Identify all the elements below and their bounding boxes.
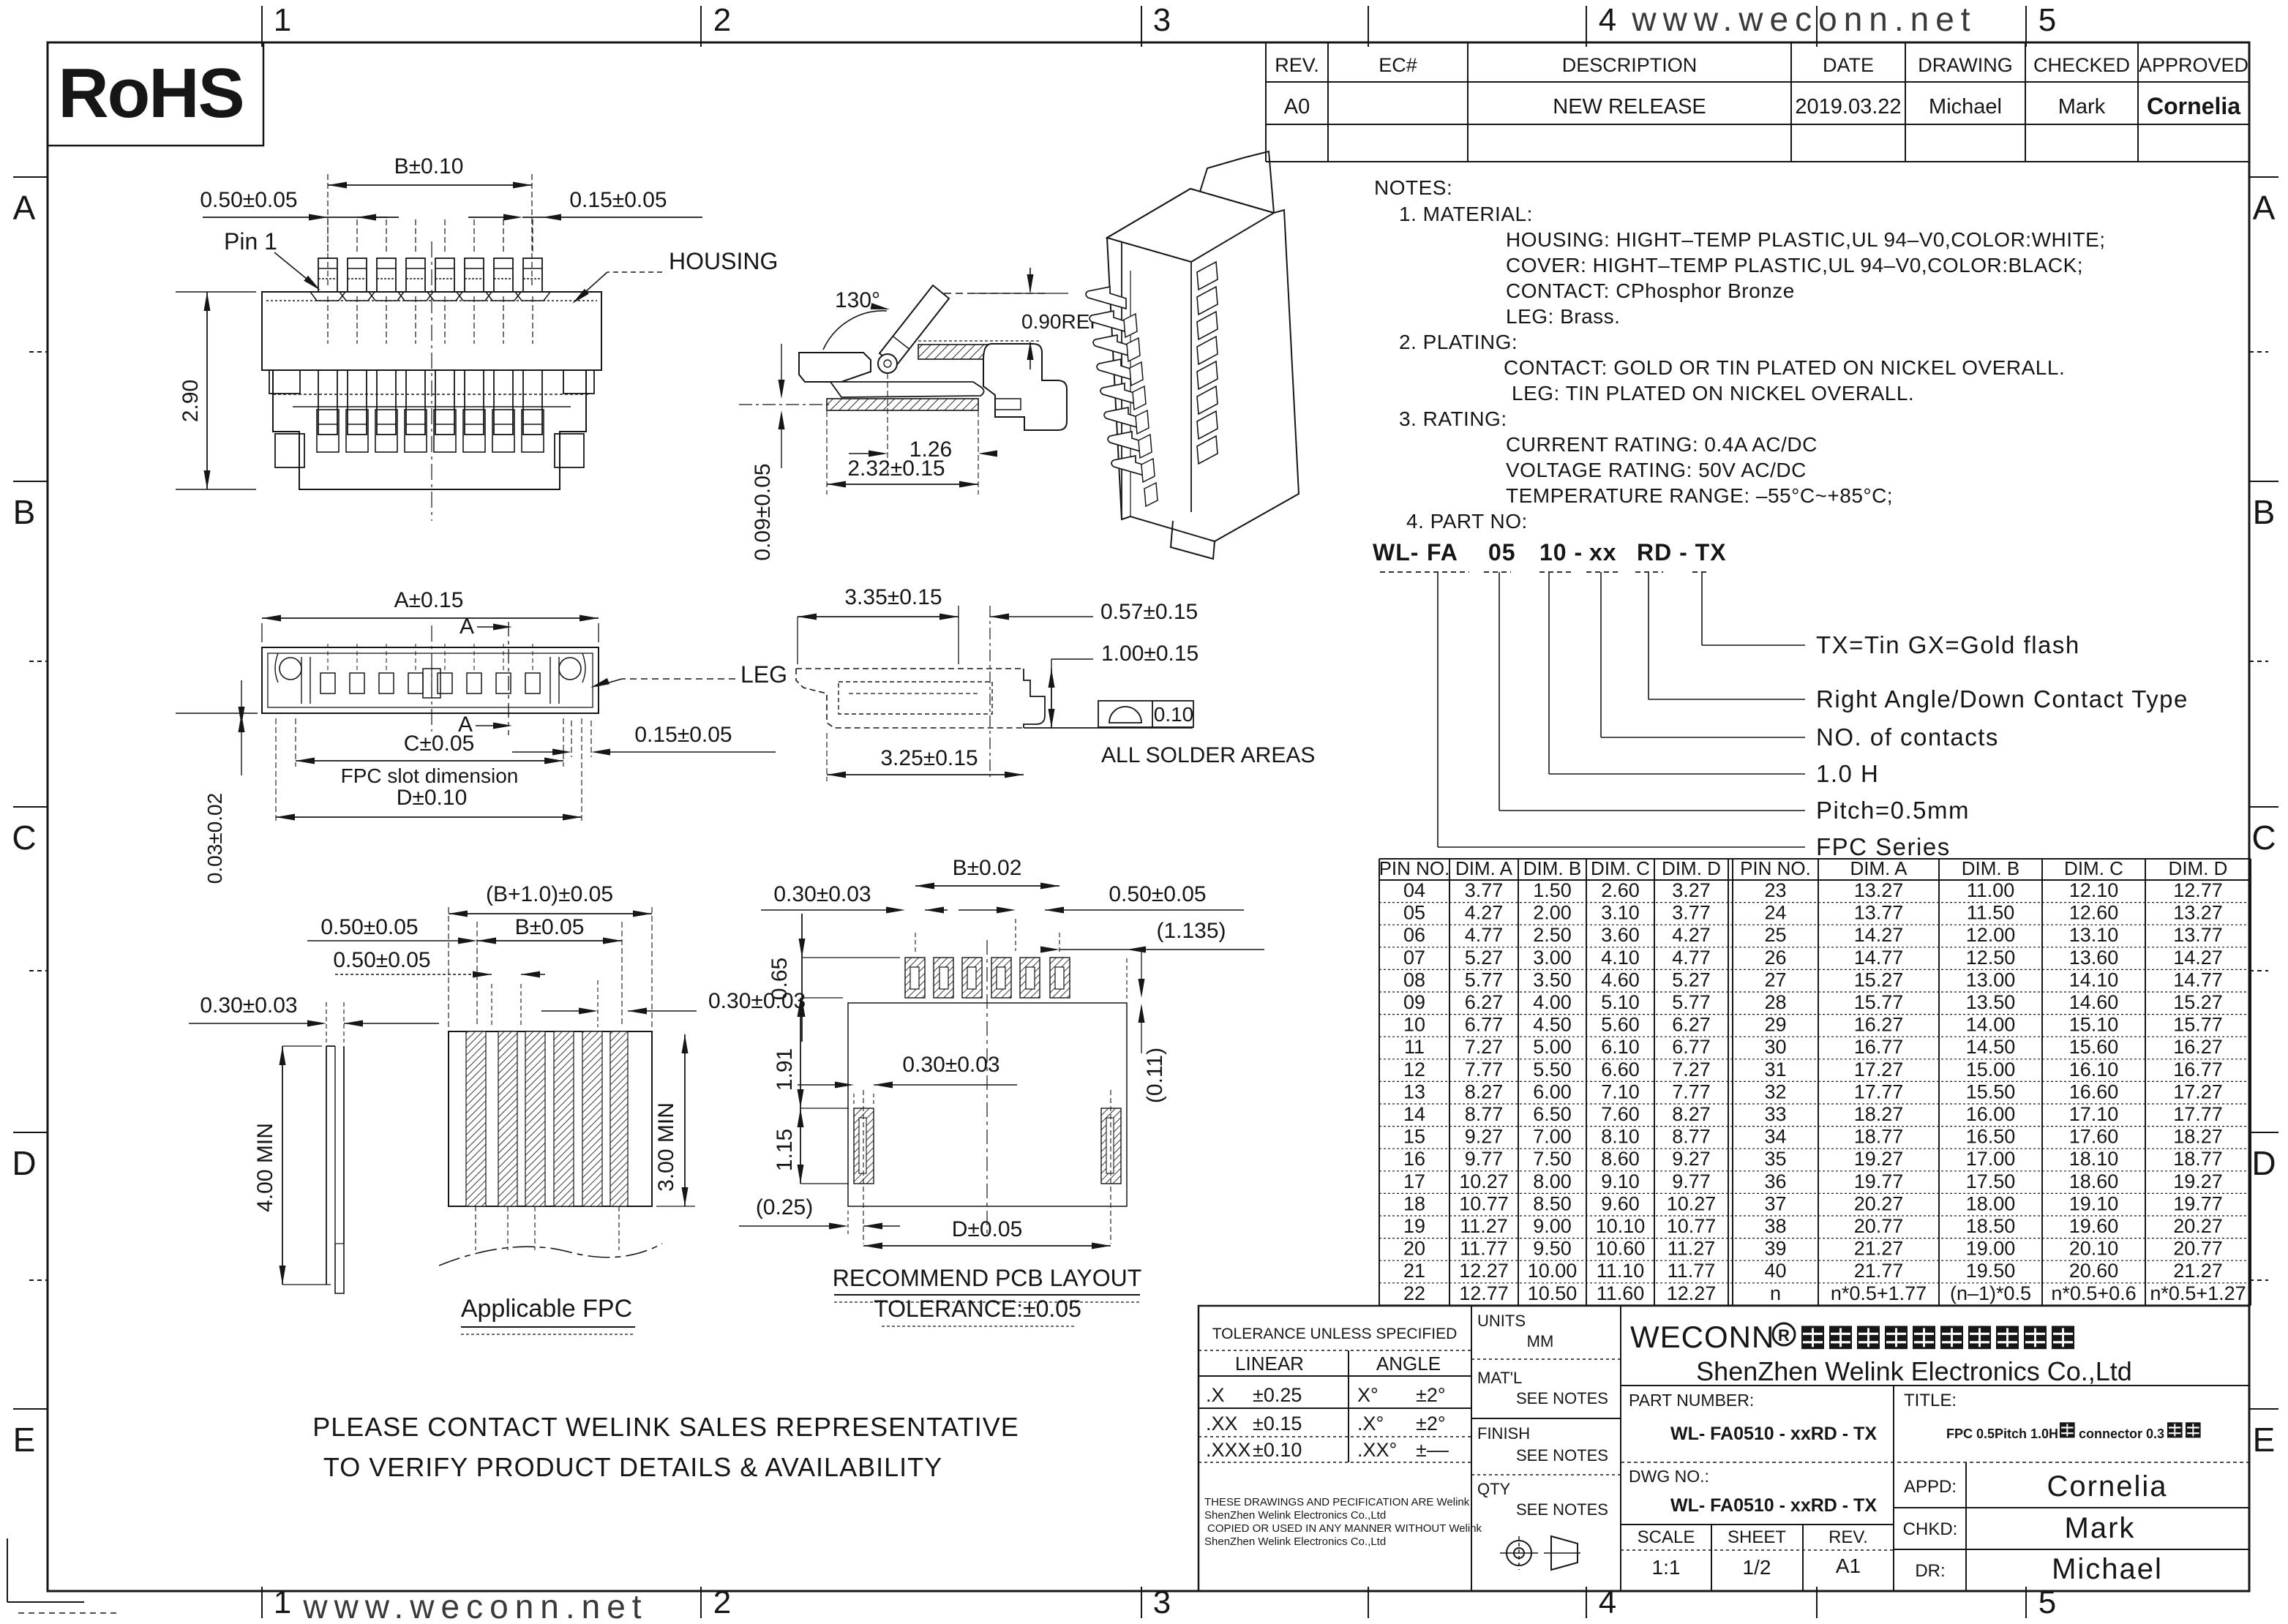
svg-text:15: 15 bbox=[1403, 1126, 1425, 1148]
svg-text:ANGLE: ANGLE bbox=[1376, 1353, 1441, 1375]
svg-text:Mark: Mark bbox=[2058, 95, 2106, 119]
svg-text:connector 0.3: connector 0.3 bbox=[2079, 1426, 2164, 1441]
svg-text:D: D bbox=[12, 1144, 36, 1182]
svg-text:WL- FA0510 - xxRD - TX: WL- FA0510 - xxRD - TX bbox=[1670, 1424, 1877, 1444]
svg-text:8.27: 8.27 bbox=[1465, 1080, 1504, 1102]
svg-text:18.60: 18.60 bbox=[2069, 1170, 2119, 1192]
svg-text:11.00: 11.00 bbox=[1967, 879, 2015, 901]
svg-text:17.10: 17.10 bbox=[2069, 1103, 2119, 1125]
svg-text:NEW RELEASE: NEW RELEASE bbox=[1553, 95, 1706, 119]
svg-text:8.27: 8.27 bbox=[1672, 1103, 1711, 1125]
svg-text:13.77: 13.77 bbox=[2173, 924, 2223, 946]
svg-text:6.00: 6.00 bbox=[1533, 1080, 1572, 1102]
svg-text:SHEET: SHEET bbox=[1728, 1527, 1786, 1547]
svg-text:15.10: 15.10 bbox=[2069, 1014, 2119, 1036]
svg-text:WL-: WL- bbox=[1373, 539, 1419, 565]
svg-text:8.50: 8.50 bbox=[1533, 1192, 1572, 1214]
svg-text:8.77: 8.77 bbox=[1672, 1126, 1711, 1148]
svg-text:27: 27 bbox=[1764, 969, 1786, 990]
svg-text:10.60: 10.60 bbox=[1596, 1238, 1646, 1260]
svg-text:32: 32 bbox=[1764, 1080, 1786, 1102]
svg-text:36: 36 bbox=[1764, 1170, 1786, 1192]
svg-text:30: 30 bbox=[1764, 1036, 1786, 1058]
svg-text:CONTACT: GOLD OR TIN PLATED ON: CONTACT: GOLD OR TIN PLATED ON NICKEL OV… bbox=[1504, 356, 2065, 379]
svg-text:17.00: 17.00 bbox=[1966, 1148, 2016, 1170]
svg-text:04: 04 bbox=[1403, 879, 1425, 901]
svg-text:X°: X° bbox=[1357, 1384, 1379, 1406]
svg-text:NO. of contacts: NO. of contacts bbox=[1816, 723, 1999, 751]
svg-text:14.77: 14.77 bbox=[2173, 969, 2223, 990]
svg-text:23: 23 bbox=[1764, 879, 1786, 901]
svg-text:3.10: 3.10 bbox=[1601, 902, 1640, 924]
svg-text:18.77: 18.77 bbox=[1854, 1126, 1904, 1148]
svg-text:±2°: ±2° bbox=[1416, 1384, 1446, 1406]
svg-text:DIM. B: DIM. B bbox=[1523, 857, 1581, 879]
svg-text:www.weconn.net: www.weconn.net bbox=[302, 1587, 648, 1624]
svg-text:22: 22 bbox=[1403, 1282, 1425, 1304]
svg-text:Right Angle/Down Contact Ty: Right Angle/Down Contact Type bbox=[1816, 685, 2188, 713]
svg-text:DIM. B: DIM. B bbox=[1962, 857, 2019, 879]
svg-text:APPROVED: APPROVED bbox=[2139, 54, 2248, 76]
svg-text:2.90: 2.90 bbox=[179, 380, 203, 422]
svg-text:DESCRIPTION: DESCRIPTION bbox=[1562, 54, 1698, 76]
svg-text:16.27: 16.27 bbox=[1854, 1014, 1904, 1036]
svg-text:4.10: 4.10 bbox=[1601, 947, 1640, 969]
svg-text:RD - TX: RD - TX bbox=[1637, 539, 1727, 565]
svg-text:2.60: 2.60 bbox=[1601, 879, 1640, 901]
svg-text:08: 08 bbox=[1403, 969, 1425, 990]
svg-text:0.65: 0.65 bbox=[768, 958, 792, 1000]
svg-text:21.27: 21.27 bbox=[2173, 1260, 2223, 1282]
svg-text:B±0.02: B±0.02 bbox=[953, 856, 1022, 880]
svg-text:4.60: 4.60 bbox=[1601, 969, 1640, 990]
svg-text:NOTES:: NOTES: bbox=[1374, 176, 1452, 199]
svg-text:DIM. A: DIM. A bbox=[1850, 857, 1908, 879]
svg-text:24: 24 bbox=[1764, 902, 1786, 924]
svg-text:TITLE:: TITLE: bbox=[1904, 1391, 1957, 1410]
svg-text:TOLERANCE:±0.05: TOLERANCE:±0.05 bbox=[874, 1296, 1081, 1322]
svg-text:C: C bbox=[12, 819, 36, 857]
svg-text:34: 34 bbox=[1764, 1126, 1786, 1148]
svg-text:15.77: 15.77 bbox=[1854, 991, 1904, 1013]
svg-text:2.32±0.15: 2.32±0.15 bbox=[847, 456, 945, 481]
svg-text:12: 12 bbox=[1403, 1059, 1425, 1080]
svg-text:2: 2 bbox=[713, 2, 731, 38]
svg-text:SEE NOTES: SEE NOTES bbox=[1516, 1500, 1608, 1519]
svg-text:5.27: 5.27 bbox=[1672, 969, 1711, 990]
svg-text:05: 05 bbox=[1488, 539, 1516, 565]
svg-text:13.00: 13.00 bbox=[1966, 969, 2016, 990]
svg-text:10.77: 10.77 bbox=[1459, 1192, 1509, 1214]
svg-text:2019.03.22: 2019.03.22 bbox=[1795, 95, 1901, 119]
svg-text:6.50: 6.50 bbox=[1533, 1103, 1572, 1125]
svg-text:6.77: 6.77 bbox=[1465, 1014, 1504, 1036]
svg-text:4.77: 4.77 bbox=[1465, 924, 1504, 946]
svg-text:4.00 MIN: 4.00 MIN bbox=[253, 1123, 277, 1212]
svg-text:ALL SOLDER AREAS: ALL SOLDER AREAS bbox=[1101, 743, 1315, 767]
svg-text:3.35±0.15: 3.35±0.15 bbox=[844, 585, 942, 609]
svg-text:5: 5 bbox=[2038, 1584, 2056, 1620]
svg-text:18.27: 18.27 bbox=[2173, 1126, 2223, 1148]
svg-text:COVER: HIGHT–TEMP PLASTIC,UL 9: COVER: HIGHT–TEMP PLASTIC,UL 94–V0,COLOR… bbox=[1506, 254, 2083, 277]
svg-text:10.27: 10.27 bbox=[1459, 1170, 1509, 1192]
svg-text:17.77: 17.77 bbox=[1854, 1080, 1904, 1102]
svg-text:7.27: 7.27 bbox=[1672, 1059, 1711, 1080]
svg-text:A0: A0 bbox=[1284, 95, 1310, 119]
svg-text:8.60: 8.60 bbox=[1601, 1148, 1640, 1170]
svg-text:12.27: 12.27 bbox=[1667, 1282, 1717, 1304]
svg-text:12.00: 12.00 bbox=[1966, 924, 2016, 946]
svg-text:7.00: 7.00 bbox=[1533, 1126, 1572, 1148]
svg-text:FPC Series: FPC Series bbox=[1816, 833, 1951, 860]
svg-text:15.50: 15.50 bbox=[1966, 1080, 2016, 1102]
svg-text:11.50: 11.50 bbox=[1967, 902, 2015, 924]
svg-text:RoHS: RoHS bbox=[58, 54, 243, 132]
svg-text:2: 2 bbox=[713, 1584, 731, 1620]
svg-text:D: D bbox=[2251, 1144, 2276, 1182]
svg-text:0.30±0.03: 0.30±0.03 bbox=[773, 882, 871, 906]
svg-text:9.77: 9.77 bbox=[1672, 1170, 1711, 1192]
svg-text:3.00 MIN: 3.00 MIN bbox=[654, 1102, 678, 1192]
svg-text:TX=Tin GX=Gold flash: TX=Tin GX=Gold flash bbox=[1816, 631, 2080, 658]
svg-text:7.50: 7.50 bbox=[1533, 1148, 1572, 1170]
svg-text:3: 3 bbox=[1153, 2, 1171, 38]
svg-text:(1.135): (1.135) bbox=[1156, 919, 1226, 943]
svg-text:5.00: 5.00 bbox=[1533, 1036, 1572, 1058]
svg-text:DIM. D: DIM. D bbox=[2169, 857, 2228, 879]
svg-text:9.50: 9.50 bbox=[1533, 1238, 1572, 1260]
svg-text:±0.15: ±0.15 bbox=[1253, 1413, 1302, 1435]
svg-text:7.77: 7.77 bbox=[1672, 1080, 1711, 1102]
svg-text:9.27: 9.27 bbox=[1465, 1126, 1504, 1148]
svg-text:21.27: 21.27 bbox=[1854, 1238, 1904, 1260]
svg-text:3.60: 3.60 bbox=[1601, 924, 1640, 946]
svg-text:15.27: 15.27 bbox=[2173, 991, 2223, 1013]
svg-text:.XX°: .XX° bbox=[1357, 1439, 1397, 1461]
svg-text:3.77: 3.77 bbox=[1465, 879, 1504, 901]
svg-text:2.50: 2.50 bbox=[1533, 924, 1572, 946]
svg-text:18: 18 bbox=[1403, 1192, 1425, 1214]
svg-text:18.00: 18.00 bbox=[1966, 1192, 2016, 1214]
svg-text:REV.: REV. bbox=[1828, 1527, 1868, 1547]
svg-text:1.15: 1.15 bbox=[773, 1129, 797, 1171]
svg-text:35: 35 bbox=[1764, 1148, 1786, 1170]
svg-text:31: 31 bbox=[1764, 1059, 1786, 1080]
svg-text:3. RATING:: 3. RATING: bbox=[1399, 407, 1507, 430]
svg-text:Cornelia: Cornelia bbox=[2047, 1470, 2168, 1503]
svg-text:15.77: 15.77 bbox=[2173, 1014, 2223, 1036]
svg-text:0.57±0.15: 0.57±0.15 bbox=[1100, 600, 1198, 624]
svg-text:4.00: 4.00 bbox=[1533, 991, 1572, 1013]
svg-text:1/2: 1/2 bbox=[1743, 1556, 1771, 1579]
svg-text:FINISH: FINISH bbox=[1477, 1424, 1530, 1443]
svg-text:LINEAR: LINEAR bbox=[1235, 1353, 1304, 1375]
svg-text:A±0.15: A±0.15 bbox=[394, 588, 464, 612]
svg-text:12.50: 12.50 bbox=[1966, 947, 2016, 969]
svg-text:.X: .X bbox=[1206, 1384, 1225, 1406]
svg-text:10.77: 10.77 bbox=[1667, 1215, 1717, 1237]
svg-text:5.27: 5.27 bbox=[1465, 947, 1504, 969]
svg-text:0.50±0.05: 0.50±0.05 bbox=[333, 948, 430, 972]
svg-text:MAT'L: MAT'L bbox=[1477, 1369, 1522, 1387]
svg-text:DRAWING: DRAWING bbox=[1918, 54, 2013, 76]
svg-text:20: 20 bbox=[1403, 1238, 1425, 1260]
svg-text:6.60: 6.60 bbox=[1601, 1059, 1640, 1080]
svg-text:Pitch=0.5mm: Pitch=0.5mm bbox=[1816, 797, 1970, 824]
svg-text:4.50: 4.50 bbox=[1533, 1014, 1572, 1036]
svg-text:TO VERIFY PRODUCT DETAILS: TO VERIFY PRODUCT DETAILS & AVAILABILITY bbox=[323, 1452, 942, 1482]
svg-text:19.00: 19.00 bbox=[1966, 1238, 2016, 1260]
svg-text:4: 4 bbox=[1599, 2, 1616, 38]
svg-text:15.27: 15.27 bbox=[1854, 969, 1904, 990]
svg-text:FA: FA bbox=[1427, 539, 1458, 565]
svg-text:B±0.10: B±0.10 bbox=[394, 154, 464, 178]
svg-text:06: 06 bbox=[1403, 924, 1425, 946]
svg-text:7.27: 7.27 bbox=[1465, 1036, 1504, 1058]
svg-text:0.09±0.05: 0.09±0.05 bbox=[751, 463, 775, 560]
svg-text:ShenZhen Welink Electronics: ShenZhen Welink Electronics Co.,Ltd bbox=[1204, 1535, 1386, 1548]
svg-text:14.50: 14.50 bbox=[1966, 1036, 2016, 1058]
svg-text:±––: ±–– bbox=[1416, 1439, 1449, 1461]
svg-text:11.77: 11.77 bbox=[1668, 1260, 1716, 1282]
svg-text:16.50: 16.50 bbox=[1966, 1126, 2016, 1148]
svg-text:www.weconn.net: www.weconn.net bbox=[1631, 0, 1976, 38]
svg-text:14: 14 bbox=[1403, 1103, 1425, 1125]
svg-text:13.60: 13.60 bbox=[2069, 947, 2119, 969]
svg-text:B±0.05: B±0.05 bbox=[515, 915, 585, 939]
svg-text:C±0.05: C±0.05 bbox=[404, 732, 475, 756]
svg-text:1:1: 1:1 bbox=[1652, 1556, 1681, 1579]
svg-text:8.10: 8.10 bbox=[1601, 1126, 1640, 1148]
svg-text:20.77: 20.77 bbox=[1854, 1215, 1904, 1237]
svg-text:16.10: 16.10 bbox=[2069, 1059, 2119, 1080]
svg-text:20.60: 20.60 bbox=[2069, 1260, 2119, 1282]
svg-text:1.0 H: 1.0 H bbox=[1816, 760, 1879, 787]
svg-text:(0.25): (0.25) bbox=[756, 1195, 813, 1219]
svg-text:(0.11): (0.11) bbox=[1143, 1048, 1167, 1103]
svg-text:11.10: 11.10 bbox=[1597, 1260, 1645, 1282]
svg-text:4: 4 bbox=[1599, 1584, 1616, 1620]
svg-text:17.27: 17.27 bbox=[1854, 1059, 1904, 1080]
svg-text:14.27: 14.27 bbox=[1854, 924, 1904, 946]
svg-text:±0.10: ±0.10 bbox=[1253, 1439, 1302, 1461]
svg-text:1. MATERIAL:: 1. MATERIAL: bbox=[1399, 203, 1533, 225]
svg-text:DR:: DR: bbox=[1915, 1561, 1945, 1581]
svg-text:0.10: 0.10 bbox=[1154, 703, 1194, 726]
svg-text:CHKD:: CHKD: bbox=[1903, 1519, 1958, 1539]
svg-text:38: 38 bbox=[1764, 1215, 1786, 1237]
svg-text:0.15±0.05: 0.15±0.05 bbox=[634, 723, 732, 747]
svg-text:8.00: 8.00 bbox=[1533, 1170, 1572, 1192]
svg-text:12.60: 12.60 bbox=[2069, 902, 2119, 924]
svg-text:9.00: 9.00 bbox=[1533, 1215, 1572, 1237]
svg-text:12.77: 12.77 bbox=[2173, 879, 2223, 901]
svg-text:WECONN: WECONN bbox=[1630, 1320, 1774, 1354]
svg-text:1.91: 1.91 bbox=[773, 1048, 797, 1091]
svg-text:E: E bbox=[13, 1421, 36, 1459]
svg-text:26: 26 bbox=[1764, 947, 1786, 969]
svg-text:19.77: 19.77 bbox=[1854, 1170, 1904, 1192]
svg-text:17.77: 17.77 bbox=[2173, 1103, 2223, 1125]
svg-text:20.77: 20.77 bbox=[2173, 1238, 2223, 1260]
svg-text:7.77: 7.77 bbox=[1465, 1059, 1504, 1080]
svg-text:13: 13 bbox=[1403, 1080, 1425, 1102]
svg-text:13.50: 13.50 bbox=[1966, 991, 2016, 1013]
svg-text:THESE DRAWINGS AND PECIFICA: THESE DRAWINGS AND PECIFICATION ARE Weli… bbox=[1204, 1496, 1470, 1508]
svg-text:n*0.5+0.6: n*0.5+0.6 bbox=[2051, 1282, 2136, 1304]
svg-text:16.77: 16.77 bbox=[1854, 1036, 1904, 1058]
svg-text:Pin 1: Pin 1 bbox=[224, 228, 277, 255]
svg-text:4.77: 4.77 bbox=[1672, 947, 1711, 969]
svg-text:10.50: 10.50 bbox=[1528, 1282, 1578, 1304]
svg-text:11.77: 11.77 bbox=[1460, 1238, 1508, 1260]
svg-text:11: 11 bbox=[1404, 1036, 1425, 1058]
svg-text:EC#: EC# bbox=[1379, 54, 1417, 76]
svg-text:HOUSING: HIGHT–TEMP PLASTIC,UL: HOUSING: HIGHT–TEMP PLASTIC,UL 94–V0,COL… bbox=[1506, 228, 2106, 251]
svg-text:20.27: 20.27 bbox=[1854, 1192, 1904, 1214]
svg-text:2.00: 2.00 bbox=[1533, 902, 1572, 924]
svg-text:21.77: 21.77 bbox=[1854, 1260, 1904, 1282]
svg-text:SCALE: SCALE bbox=[1638, 1527, 1695, 1547]
svg-text:WL- FA0510 - xxRD - TX: WL- FA0510 - xxRD - TX bbox=[1670, 1495, 1877, 1516]
svg-text:25: 25 bbox=[1764, 924, 1786, 946]
svg-text:APPD:: APPD: bbox=[1904, 1477, 1957, 1497]
svg-text:Mark: Mark bbox=[2065, 1512, 2136, 1544]
svg-text:D±0.10: D±0.10 bbox=[397, 786, 468, 810]
svg-text:n*0.5+1.27: n*0.5+1.27 bbox=[2150, 1282, 2246, 1304]
svg-text:14.77: 14.77 bbox=[1854, 947, 1904, 969]
svg-text:3: 3 bbox=[1153, 1584, 1171, 1620]
svg-text:±0.25: ±0.25 bbox=[1253, 1384, 1302, 1406]
svg-text:REV.: REV. bbox=[1275, 54, 1319, 76]
svg-text:16.77: 16.77 bbox=[2173, 1059, 2223, 1080]
svg-text:12.27: 12.27 bbox=[1459, 1260, 1509, 1282]
svg-text:1.00±0.15: 1.00±0.15 bbox=[1101, 642, 1199, 666]
svg-text:12.10: 12.10 bbox=[2069, 879, 2119, 901]
svg-text:Cornelia: Cornelia bbox=[2147, 93, 2240, 119]
svg-text:PIN NO.: PIN NO. bbox=[1740, 857, 1811, 879]
svg-text:3.25±0.15: 3.25±0.15 bbox=[880, 746, 978, 770]
svg-text:Applicable FPC: Applicable FPC bbox=[461, 1295, 632, 1323]
svg-text:16.00: 16.00 bbox=[1966, 1103, 2016, 1125]
svg-text:C: C bbox=[2251, 819, 2276, 857]
svg-text:5.60: 5.60 bbox=[1601, 1014, 1640, 1036]
svg-text:0.30±0.03: 0.30±0.03 bbox=[200, 993, 297, 1018]
svg-text:8.77: 8.77 bbox=[1465, 1103, 1504, 1125]
svg-text:6.27: 6.27 bbox=[1465, 991, 1504, 1013]
svg-text:0.90REF: 0.90REF bbox=[1021, 310, 1103, 333]
svg-text:17.50: 17.50 bbox=[1966, 1170, 2016, 1192]
svg-text:14.60: 14.60 bbox=[2069, 991, 2119, 1013]
svg-text:0.50±0.05: 0.50±0.05 bbox=[1109, 882, 1206, 906]
svg-text:TEMPERATURE RANGE: –55°C~+85°C: TEMPERATURE RANGE: –55°C~+85°C; bbox=[1506, 484, 1893, 507]
svg-text:0.30±0.03: 0.30±0.03 bbox=[902, 1053, 999, 1077]
svg-text:SEE NOTES: SEE NOTES bbox=[1516, 1389, 1608, 1407]
svg-text:33: 33 bbox=[1764, 1103, 1786, 1125]
svg-text:18.77: 18.77 bbox=[2173, 1148, 2223, 1170]
svg-text:11.27: 11.27 bbox=[1668, 1238, 1716, 1260]
svg-text:18.27: 18.27 bbox=[1854, 1103, 1904, 1125]
svg-text:37: 37 bbox=[1764, 1192, 1786, 1214]
svg-text:A: A bbox=[13, 189, 36, 227]
svg-text:19.27: 19.27 bbox=[1854, 1148, 1904, 1170]
svg-text:19.60: 19.60 bbox=[2069, 1215, 2119, 1237]
svg-text:A: A bbox=[2253, 189, 2276, 227]
svg-text:SEE NOTES: SEE NOTES bbox=[1516, 1446, 1608, 1465]
svg-text:.XX: .XX bbox=[1206, 1413, 1238, 1435]
svg-text:LEG: TIN PLATED ON NICKEL OVER: LEG: TIN PLATED ON NICKEL OVERALL. bbox=[1512, 382, 1914, 405]
svg-text:16.27: 16.27 bbox=[2173, 1036, 2223, 1058]
svg-text:ShenZhen Welink Electronics: ShenZhen Welink Electronics Co.,Ltd bbox=[1204, 1509, 1386, 1522]
svg-text:LEG: LEG bbox=[740, 661, 787, 688]
svg-text:9.60: 9.60 bbox=[1601, 1192, 1640, 1214]
svg-text:6.10: 6.10 bbox=[1601, 1036, 1640, 1058]
svg-text:PLEASE CONTACT WELINK SALES: PLEASE CONTACT WELINK SALES REPRESENTATI… bbox=[312, 1412, 1019, 1442]
svg-text:07: 07 bbox=[1403, 947, 1425, 969]
svg-text:6.77: 6.77 bbox=[1672, 1036, 1711, 1058]
svg-text:40: 40 bbox=[1764, 1260, 1786, 1282]
svg-text:Michael: Michael bbox=[2052, 1553, 2163, 1585]
svg-text:DIM. A: DIM. A bbox=[1455, 857, 1513, 879]
svg-text:2. PLATING:: 2. PLATING: bbox=[1399, 331, 1518, 353]
svg-text:QTY: QTY bbox=[1477, 1480, 1511, 1498]
svg-text:5.50: 5.50 bbox=[1533, 1059, 1572, 1080]
svg-text:(n–1)*0.5: (n–1)*0.5 bbox=[1950, 1282, 2031, 1304]
svg-text:16: 16 bbox=[1403, 1148, 1425, 1170]
svg-text:1.50: 1.50 bbox=[1533, 879, 1572, 901]
svg-text:14.27: 14.27 bbox=[2173, 947, 2223, 969]
svg-text:1: 1 bbox=[274, 2, 291, 38]
svg-text:13.77: 13.77 bbox=[1854, 902, 1904, 924]
svg-text:17.60: 17.60 bbox=[2069, 1126, 2119, 1148]
svg-text:39: 39 bbox=[1764, 1238, 1786, 1260]
svg-text:4.27: 4.27 bbox=[1465, 902, 1504, 924]
svg-text:5.10: 5.10 bbox=[1601, 991, 1640, 1013]
svg-text:19.10: 19.10 bbox=[2069, 1192, 2119, 1214]
svg-text:CURRENT RATING: 0.4A AC/DC: CURRENT RATING: 0.4A AC/DC bbox=[1506, 433, 1818, 456]
svg-text:19.27: 19.27 bbox=[2173, 1170, 2223, 1192]
svg-text:0.03±0.02: 0.03±0.02 bbox=[203, 793, 226, 884]
svg-text:DIM. D: DIM. D bbox=[1662, 857, 1721, 879]
svg-text:15.60: 15.60 bbox=[2069, 1036, 2119, 1058]
svg-text:18.50: 18.50 bbox=[1966, 1215, 2016, 1237]
svg-text:MM: MM bbox=[1527, 1332, 1554, 1350]
svg-text:.XXX: .XXX bbox=[1206, 1439, 1251, 1461]
svg-text:05: 05 bbox=[1403, 902, 1425, 924]
svg-text:0.15±0.05: 0.15±0.05 bbox=[569, 188, 667, 212]
svg-text:.X°: .X° bbox=[1357, 1413, 1384, 1435]
svg-text:UNITS: UNITS bbox=[1477, 1312, 1526, 1330]
svg-text:DIM. C: DIM. C bbox=[2064, 857, 2123, 879]
svg-text:B: B bbox=[2253, 493, 2276, 531]
svg-text:11.27: 11.27 bbox=[1460, 1215, 1508, 1237]
svg-text:13.27: 13.27 bbox=[1854, 879, 1904, 901]
svg-text:CHECKED: CHECKED bbox=[2033, 54, 2130, 76]
svg-text:xx: xx bbox=[1589, 539, 1617, 565]
svg-text:n*0.5+1.77: n*0.5+1.77 bbox=[1831, 1282, 1927, 1304]
svg-text:FPC slot dimension: FPC slot dimension bbox=[341, 764, 519, 787]
svg-text:COPIED OR USED IN ANY MAN: COPIED OR USED IN ANY MANNER WITHOUT Wel… bbox=[1207, 1522, 1482, 1535]
svg-text:PIN NO.: PIN NO. bbox=[1379, 857, 1450, 879]
svg-text:VOLTAGE RATING: 50V AC/DC: VOLTAGE RATING: 50V AC/DC bbox=[1506, 459, 1807, 481]
svg-text:DATE: DATE bbox=[1823, 54, 1874, 76]
svg-text:5.77: 5.77 bbox=[1672, 991, 1711, 1013]
svg-text:D±0.05: D±0.05 bbox=[952, 1217, 1023, 1241]
svg-text:PART NUMBER:: PART NUMBER: bbox=[1629, 1391, 1754, 1410]
svg-text:13.27: 13.27 bbox=[2173, 902, 2223, 924]
svg-text:0.50±0.05: 0.50±0.05 bbox=[200, 188, 297, 212]
svg-text:4.27: 4.27 bbox=[1672, 924, 1711, 946]
